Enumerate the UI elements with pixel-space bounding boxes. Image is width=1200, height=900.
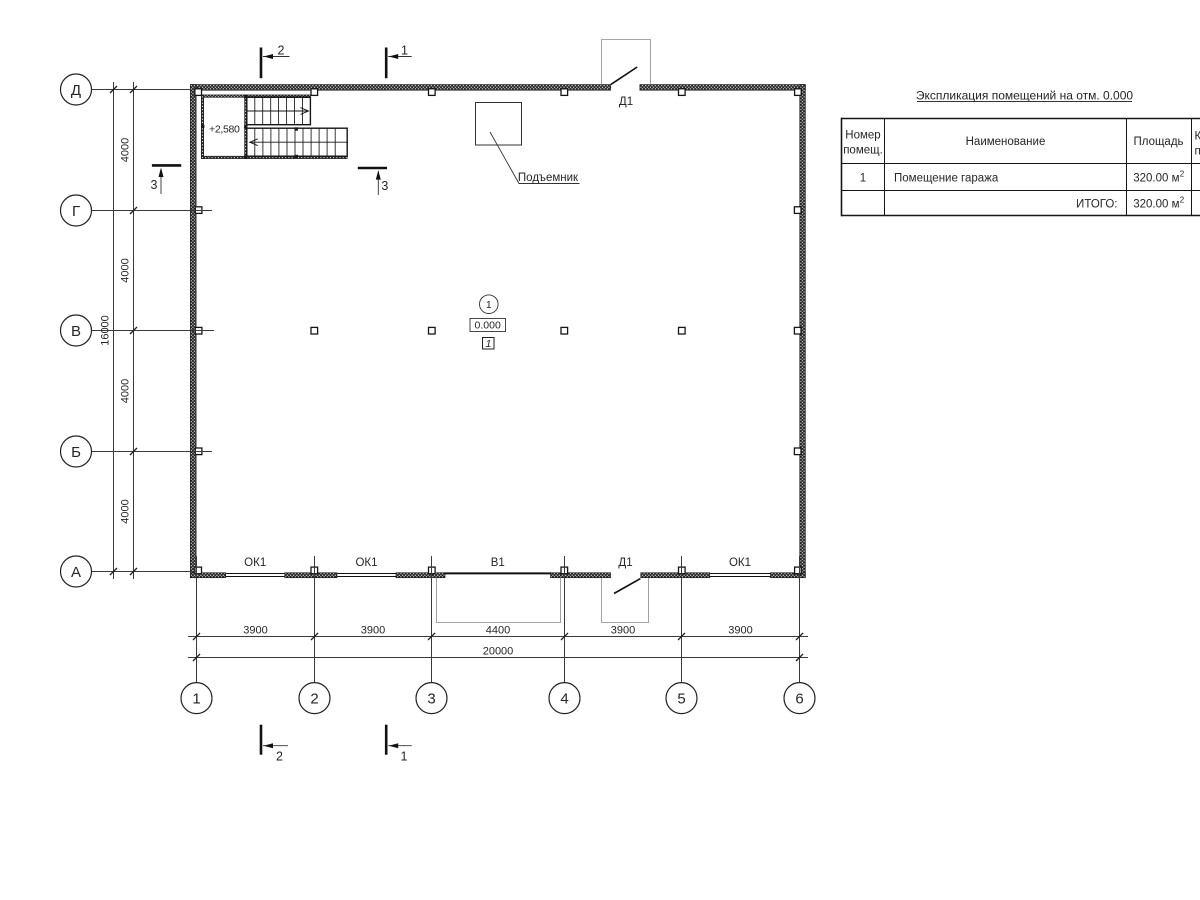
svg-text:1: 1 (860, 173, 866, 185)
svg-text:Б: Б (71, 444, 81, 461)
svg-text:1: 1 (401, 44, 408, 58)
svg-text:Д: Д (71, 82, 81, 99)
svg-text:ОК1: ОК1 (729, 557, 751, 569)
svg-text:320.00 м: 320.00 м (1133, 198, 1179, 210)
svg-text:ОК1: ОК1 (244, 557, 266, 569)
svg-text:помещ.: помещ. (843, 145, 883, 157)
svg-text:Подъемник: Подъемник (518, 172, 579, 184)
svg-text:4000: 4000 (120, 138, 132, 162)
svg-text:Д1: Д1 (619, 96, 633, 108)
svg-text:3900: 3900 (361, 624, 385, 636)
svg-text:3900: 3900 (243, 624, 267, 636)
svg-text:А: А (71, 564, 81, 581)
svg-text:Наименование: Наименование (966, 136, 1046, 148)
svg-text:Площадь: Площадь (1133, 136, 1183, 148)
svg-text:В: В (71, 323, 81, 340)
svg-text:2: 2 (1180, 195, 1185, 204)
svg-text:320.00 м: 320.00 м (1133, 172, 1179, 184)
svg-text:Помещение гаража: Помещение гаража (894, 173, 999, 185)
svg-text:Номер: Номер (845, 130, 880, 142)
svg-text:4000: 4000 (120, 499, 132, 523)
svg-text:+2,580: +2,580 (209, 123, 240, 135)
svg-text:4400: 4400 (486, 624, 510, 636)
svg-text:0.000: 0.000 (475, 320, 501, 332)
svg-text:20000: 20000 (483, 645, 514, 657)
svg-text:16000: 16000 (100, 315, 112, 346)
svg-text:Д1: Д1 (618, 557, 632, 569)
svg-text:пом: пом (1195, 146, 1200, 158)
svg-text:ИТОГО:: ИТОГО: (1076, 198, 1117, 210)
svg-text:1: 1 (192, 690, 200, 707)
svg-text:Г: Г (72, 203, 80, 220)
svg-text:3900: 3900 (611, 624, 635, 636)
svg-text:4000: 4000 (120, 379, 132, 403)
svg-text:3: 3 (381, 179, 388, 193)
svg-text:4000: 4000 (120, 258, 132, 282)
svg-text:6: 6 (795, 690, 803, 707)
svg-text:3: 3 (427, 690, 435, 707)
svg-text:1: 1 (486, 299, 492, 311)
svg-text:3900: 3900 (728, 624, 752, 636)
svg-text:4: 4 (560, 690, 568, 707)
svg-text:3: 3 (151, 178, 158, 192)
svg-text:2: 2 (310, 690, 318, 707)
svg-text:1: 1 (485, 338, 491, 350)
svg-text:В1: В1 (491, 557, 505, 569)
svg-text:Экспликация помещений на отм.: Экспликация помещений на отм. 0.000 (916, 89, 1133, 103)
svg-text:2: 2 (1180, 169, 1185, 178)
svg-text:ОК1: ОК1 (355, 557, 377, 569)
svg-text:2: 2 (276, 750, 283, 764)
svg-text:1: 1 (401, 750, 408, 764)
svg-text:5: 5 (677, 690, 685, 707)
svg-text:2: 2 (278, 44, 285, 58)
svg-text:Кат: Кат (1195, 131, 1200, 143)
